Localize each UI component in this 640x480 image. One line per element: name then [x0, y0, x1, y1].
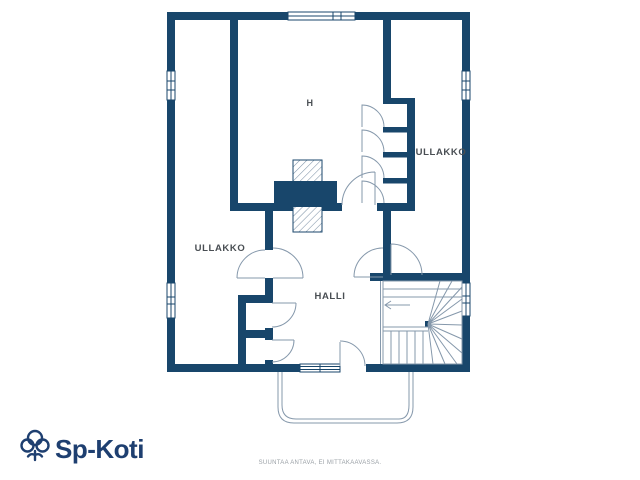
floor-plan-page: H ULLAKKO ULLAKKO HALLI Sp-Koti SUUNTAA …: [0, 0, 640, 480]
logo-text: Sp-Koti: [55, 434, 144, 464]
window-right-lower: [462, 283, 470, 316]
balcony-door: [300, 364, 340, 372]
door-arc-closet-right-1: [362, 105, 384, 127]
wall-halli-stair: [383, 211, 391, 273]
wall-stair-top: [370, 273, 462, 281]
wall-left-upper: [167, 12, 175, 71]
window-top: [288, 12, 355, 20]
wall-right-middle: [462, 100, 470, 283]
window-left-lower: [167, 283, 175, 318]
wall-ullakko-halli-upper: [265, 211, 273, 250]
wall-under-h-right: [377, 203, 383, 211]
door-arc-halli-east: [354, 248, 383, 277]
footer-disclaimer: SUUNTAA ANTAVA, EI MITTAKAAVASSA.: [160, 460, 480, 466]
fireplace-block-overlay: [274, 181, 337, 207]
floor-plan-svg: H ULLAKKO ULLAKKO HALLI: [0, 0, 640, 480]
wall-ullakko-halli-stub2: [265, 360, 273, 372]
room-label-halli: HALLI: [315, 291, 346, 302]
wall-right-lower: [462, 316, 470, 372]
door-arc-halli-west: [273, 248, 303, 278]
door-arc-closet-left-1: [272, 303, 296, 327]
closet-left-top-wall: [238, 295, 273, 303]
balcony: [278, 372, 413, 423]
closet-left-outer-wall: [238, 295, 246, 372]
wall-right-upper: [462, 12, 470, 71]
wall-top-right: [355, 12, 470, 20]
wall-left-lower: [167, 318, 175, 372]
wall-bottom-right: [366, 364, 470, 372]
closet-left-divider: [246, 330, 273, 338]
closet-right-divider-3: [383, 178, 415, 184]
wall-top-left: [167, 12, 288, 20]
sp-koti-logo: Sp-Koti: [18, 427, 168, 469]
door-arc-stair-landing: [391, 244, 422, 275]
door-arc-h-room: [342, 172, 375, 205]
wall-h-right-upper: [383, 20, 391, 104]
window-right-upper: [462, 71, 470, 100]
door-arc-bottom-exit: [340, 341, 365, 366]
wall-left-middle: [167, 100, 175, 283]
staircase: [381, 281, 463, 364]
door-arc-closet-left-2: [272, 340, 294, 362]
clover-tree-icon: [22, 431, 49, 460]
door-arc-closet-right-3: [362, 156, 384, 178]
stair-direction-arrow: [385, 301, 410, 309]
wall-bottom-left: [167, 364, 300, 372]
closet-right-divider-2: [383, 152, 415, 158]
closet-right-divider-1: [383, 127, 415, 133]
room-label-h: H: [307, 98, 314, 108]
room-label-ullakko-left: ULLAKKO: [195, 243, 246, 254]
room-label-ullakko-right: ULLAKKO: [416, 147, 467, 158]
door-arc-closet-right-2: [362, 130, 384, 152]
window-left-upper: [167, 71, 175, 100]
wall-h-left: [230, 20, 238, 211]
door-arc-ullakko-left: [237, 250, 265, 278]
closet-right-bottom-wall: [383, 203, 415, 211]
door-arc-closet-right-4: [362, 181, 384, 203]
